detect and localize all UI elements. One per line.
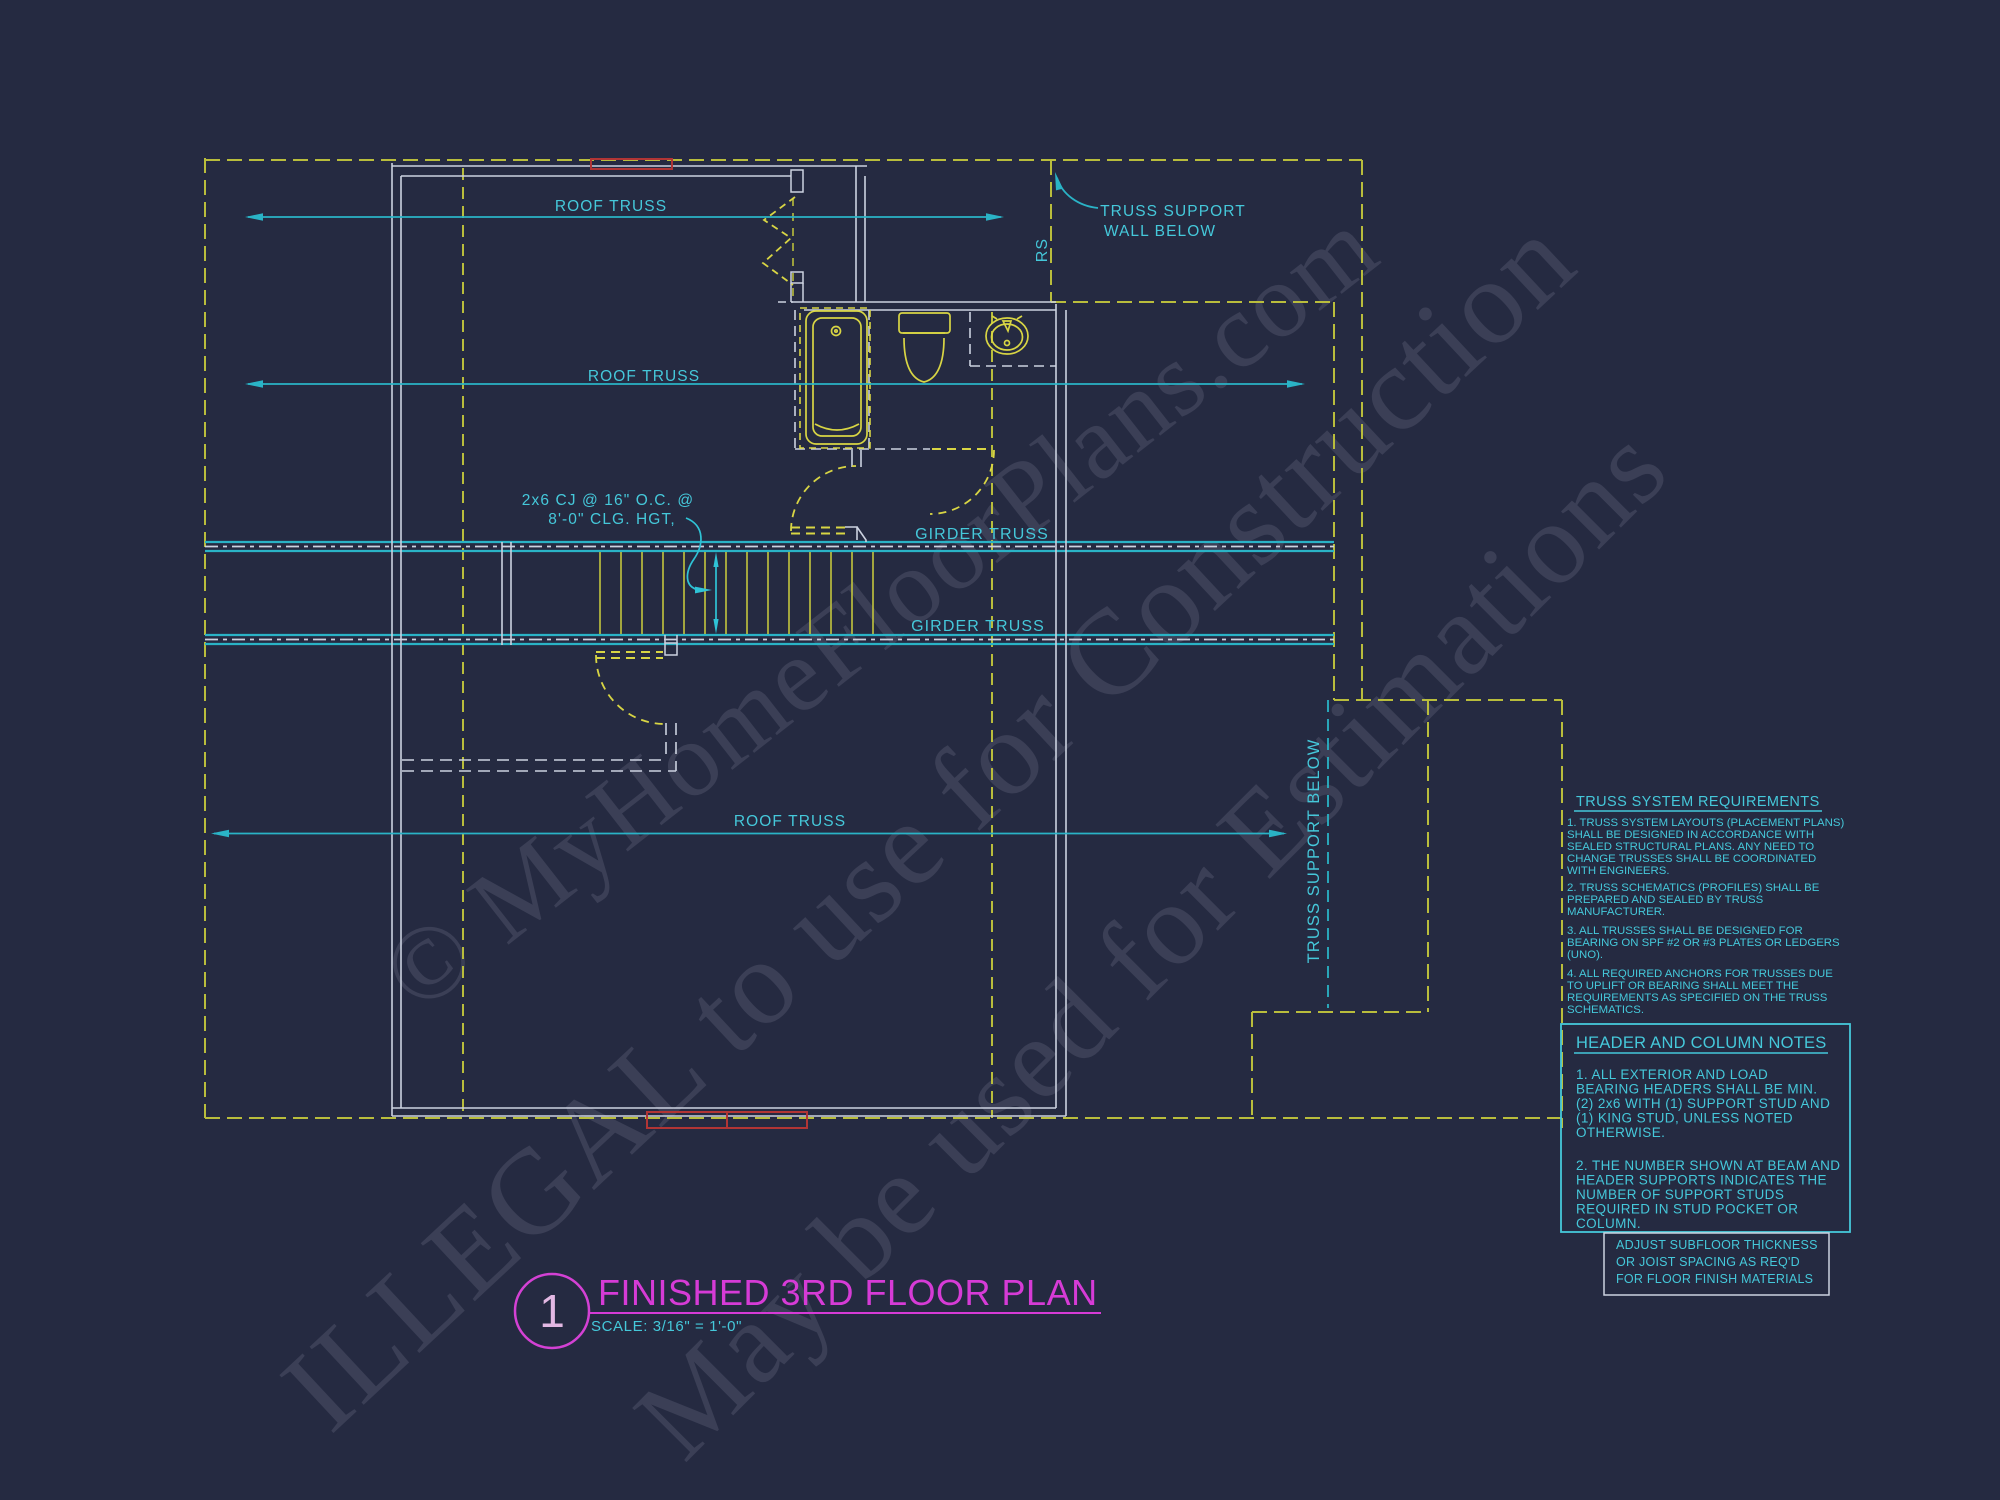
- svg-text:OR JOIST SPACING AS REQ'D: OR JOIST SPACING AS REQ'D: [1616, 1255, 1800, 1269]
- svg-text:(UNO).: (UNO).: [1567, 949, 1603, 961]
- svg-text:2x6 CJ @ 16" O.C. @: 2x6 CJ @ 16" O.C. @: [522, 492, 694, 509]
- svg-text:1. TRUSS SYSTEM LAYOUTS (PLACE: 1. TRUSS SYSTEM LAYOUTS (PLACEMENT PLANS…: [1567, 817, 1844, 829]
- svg-text:BEARING HEADERS SHALL BE MIN.: BEARING HEADERS SHALL BE MIN.: [1576, 1082, 1817, 1097]
- svg-text:TRUSS SUPPORT: TRUSS SUPPORT: [1100, 203, 1246, 220]
- svg-text:RS: RS: [1034, 238, 1051, 262]
- svg-text:ROOF TRUSS: ROOF TRUSS: [588, 368, 700, 385]
- svg-text:SCHEMATICS.: SCHEMATICS.: [1567, 1004, 1644, 1016]
- svg-text:4. ALL REQUIRED ANCHORS FOR TR: 4. ALL REQUIRED ANCHORS FOR TRUSSES DUE: [1567, 968, 1833, 980]
- svg-text:ADJUST SUBFLOOR THICKNESS: ADJUST SUBFLOOR THICKNESS: [1616, 1238, 1818, 1252]
- svg-text:FINISHED 3RD FLOOR PLAN: FINISHED 3RD FLOOR PLAN: [598, 1272, 1098, 1313]
- svg-text:TO UPLIFT OR BEARING SHALL MEE: TO UPLIFT OR BEARING SHALL MEET THE: [1567, 980, 1799, 992]
- svg-text:WALL BELOW: WALL BELOW: [1104, 223, 1216, 240]
- svg-text:2. TRUSS SCHEMATICS (PROFILES): 2. TRUSS SCHEMATICS (PROFILES) SHALL BE: [1567, 882, 1820, 894]
- svg-text:HEADER SUPPORTS INDICATES THE: HEADER SUPPORTS INDICATES THE: [1576, 1173, 1827, 1188]
- svg-text:TRUSS SYSTEM REQUIREMENTS: TRUSS SYSTEM REQUIREMENTS: [1576, 794, 1820, 810]
- svg-text:2. THE NUMBER SHOWN AT BEAM AN: 2. THE NUMBER SHOWN AT BEAM AND: [1576, 1158, 1840, 1173]
- svg-text:BEARING ON SPF #2 OR #3 PLATES: BEARING ON SPF #2 OR #3 PLATES OR LEDGER…: [1567, 937, 1840, 949]
- svg-text:CHANGE TRUSSES SHALL BE COORDI: CHANGE TRUSSES SHALL BE COORDINATED: [1567, 853, 1816, 865]
- svg-text:3. ALL TRUSSES SHALL BE DESIGN: 3. ALL TRUSSES SHALL BE DESIGNED FOR: [1567, 925, 1803, 937]
- svg-text:REQUIRED IN STUD POCKET OR: REQUIRED IN STUD POCKET OR: [1576, 1202, 1798, 1217]
- svg-text:TRUSS SUPPORT BELOW: TRUSS SUPPORT BELOW: [1305, 739, 1323, 964]
- svg-text:8'-0" CLG. HGT,: 8'-0" CLG. HGT,: [548, 511, 675, 528]
- svg-text:PREPARED AND SEALED BY TRUSS: PREPARED AND SEALED BY TRUSS: [1567, 894, 1764, 906]
- svg-text:1: 1: [539, 1285, 565, 1337]
- svg-text:COLUMN.: COLUMN.: [1576, 1216, 1641, 1231]
- svg-text:(2) 2x6 WITH (1) SUPPORT STUD: (2) 2x6 WITH (1) SUPPORT STUD AND: [1576, 1096, 1830, 1111]
- svg-text:FOR FLOOR FINISH MATERIALS: FOR FLOOR FINISH MATERIALS: [1616, 1272, 1813, 1286]
- svg-text:ROOF TRUSS: ROOF TRUSS: [555, 198, 667, 215]
- svg-text:ROOF TRUSS: ROOF TRUSS: [734, 813, 846, 830]
- svg-text:REQUIREMENTS AS SPECIFIED ON T: REQUIREMENTS AS SPECIFIED ON THE TRUSS: [1567, 992, 1828, 1004]
- svg-text:GIRDER TRUSS: GIRDER TRUSS: [911, 618, 1045, 635]
- svg-text:OTHERWISE.: OTHERWISE.: [1576, 1125, 1665, 1140]
- svg-text:MANUFACTURER.: MANUFACTURER.: [1567, 906, 1665, 918]
- svg-text:HEADER AND COLUMN NOTES: HEADER AND COLUMN NOTES: [1576, 1034, 1827, 1052]
- svg-text:SCALE: 3/16" = 1'-0": SCALE: 3/16" = 1'-0": [591, 1318, 742, 1335]
- svg-text:SHALL BE DESIGNED IN ACCORDANC: SHALL BE DESIGNED IN ACCORDANCE WITH: [1567, 829, 1814, 841]
- svg-text:(1) KING STUD, UNLESS NOTED: (1) KING STUD, UNLESS NOTED: [1576, 1111, 1793, 1126]
- svg-text:NUMBER OF SUPPORT STUDS: NUMBER OF SUPPORT STUDS: [1576, 1187, 1784, 1202]
- svg-text:GIRDER TRUSS: GIRDER TRUSS: [915, 526, 1049, 543]
- svg-text:SEALED STRUCTURAL PLANS. ANY N: SEALED STRUCTURAL PLANS. ANY NEED TO: [1567, 841, 1814, 853]
- svg-text:1. ALL EXTERIOR AND LOAD: 1. ALL EXTERIOR AND LOAD: [1576, 1067, 1768, 1082]
- svg-text:WITH ENGINEERS.: WITH ENGINEERS.: [1567, 865, 1670, 877]
